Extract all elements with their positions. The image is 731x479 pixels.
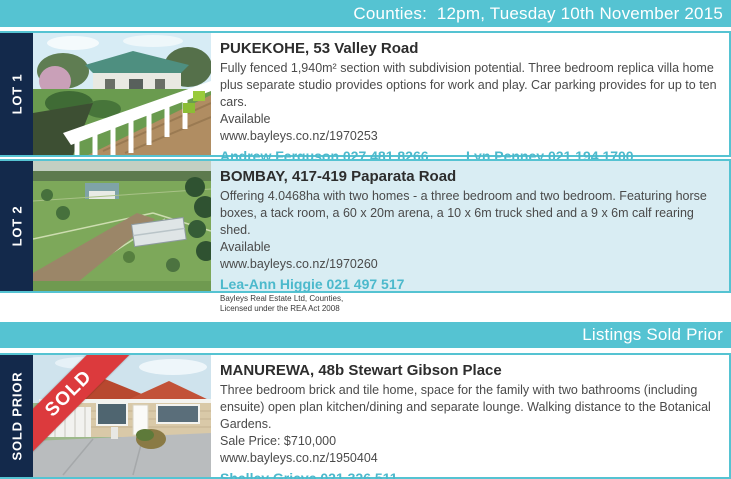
lot-number-bar: LOT 2 — [0, 161, 33, 291]
sale-price: Sale Price: $710,000 — [220, 433, 721, 450]
property-photo-aerial — [33, 161, 211, 291]
listing-card-lot2: LOT 2 BOM — [0, 159, 731, 293]
listing-card-sold-prior: SOLD PRIOR S — [0, 353, 731, 479]
property-photo-villa — [33, 33, 211, 155]
auction-header-bar: Counties: 12pm, Tuesday 10th November 20… — [0, 0, 731, 27]
agent-contact: Lea-Ann Higgie 021 497 517 Bayleys Real … — [220, 276, 404, 314]
lot-label: LOT 1 — [9, 74, 24, 115]
agency-disclaimer-line1: Bayleys Real Estate Ltd, Counties, — [220, 294, 404, 304]
listing-description: Three bedroom brick and tile home, space… — [220, 382, 721, 433]
agent-name-phone[interactable]: Lea-Ann Higgie 021 497 517 — [220, 276, 404, 292]
listing-title: PUKEKOHE, 53 Valley Road — [220, 40, 721, 57]
listing-card-lot1: LOT 1 — [0, 31, 731, 157]
listing-title: BOMBAY, 417-419 Paparata Road — [220, 168, 721, 185]
availability-status: Available — [220, 239, 721, 256]
sold-prior-header-label: Listings Sold Prior — [582, 325, 723, 345]
lot-label: SOLD PRIOR — [9, 372, 24, 461]
listing-description: Fully fenced 1,940m² section with subdiv… — [220, 60, 721, 111]
aerial-photo-illustration — [33, 161, 211, 291]
listing-url[interactable]: www.bayleys.co.nz/1950404 — [220, 450, 721, 467]
availability-status: Available — [220, 111, 721, 128]
property-photo-brick-home: SOLD — [33, 355, 211, 477]
auction-header-label: Counties: 12pm, Tuesday 10th November 20… — [353, 4, 723, 24]
listing-details: MANUREWA, 48b Stewart Gibson Place Three… — [211, 355, 729, 477]
sold-prior-header-bar: Listings Sold Prior — [0, 322, 731, 348]
listing-title: MANUREWA, 48b Stewart Gibson Place — [220, 362, 721, 379]
lot-number-bar: LOT 1 — [0, 33, 33, 155]
agent-row: Lea-Ann Higgie 021 497 517 Bayleys Real … — [220, 276, 721, 314]
lot-number-bar: SOLD PRIOR — [0, 355, 33, 477]
listing-url[interactable]: www.bayleys.co.nz/1970253 — [220, 128, 721, 145]
villa-photo-illustration — [33, 33, 211, 155]
lot-label: LOT 2 — [9, 206, 24, 247]
listing-details: PUKEKOHE, 53 Valley Road Fully fenced 1,… — [211, 33, 729, 155]
agency-disclaimer-line2: Licensed under the REA Act 2008 — [220, 304, 404, 314]
agent-contact: Shelley Grieve 021 326 511 Bayleys Real … — [220, 470, 397, 479]
agent-name-phone[interactable]: Shelley Grieve 021 326 511 — [220, 470, 397, 479]
listing-description: Offering 4.0468ha with two homes - a thr… — [220, 188, 721, 239]
agency-disclaimer: Bayleys Real Estate Ltd, Counties, Licen… — [220, 294, 404, 314]
agent-row: Shelley Grieve 021 326 511 Bayleys Real … — [220, 470, 721, 479]
listing-details: BOMBAY, 417-419 Paparata Road Offering 4… — [211, 161, 729, 291]
listing-url[interactable]: www.bayleys.co.nz/1970260 — [220, 256, 721, 273]
